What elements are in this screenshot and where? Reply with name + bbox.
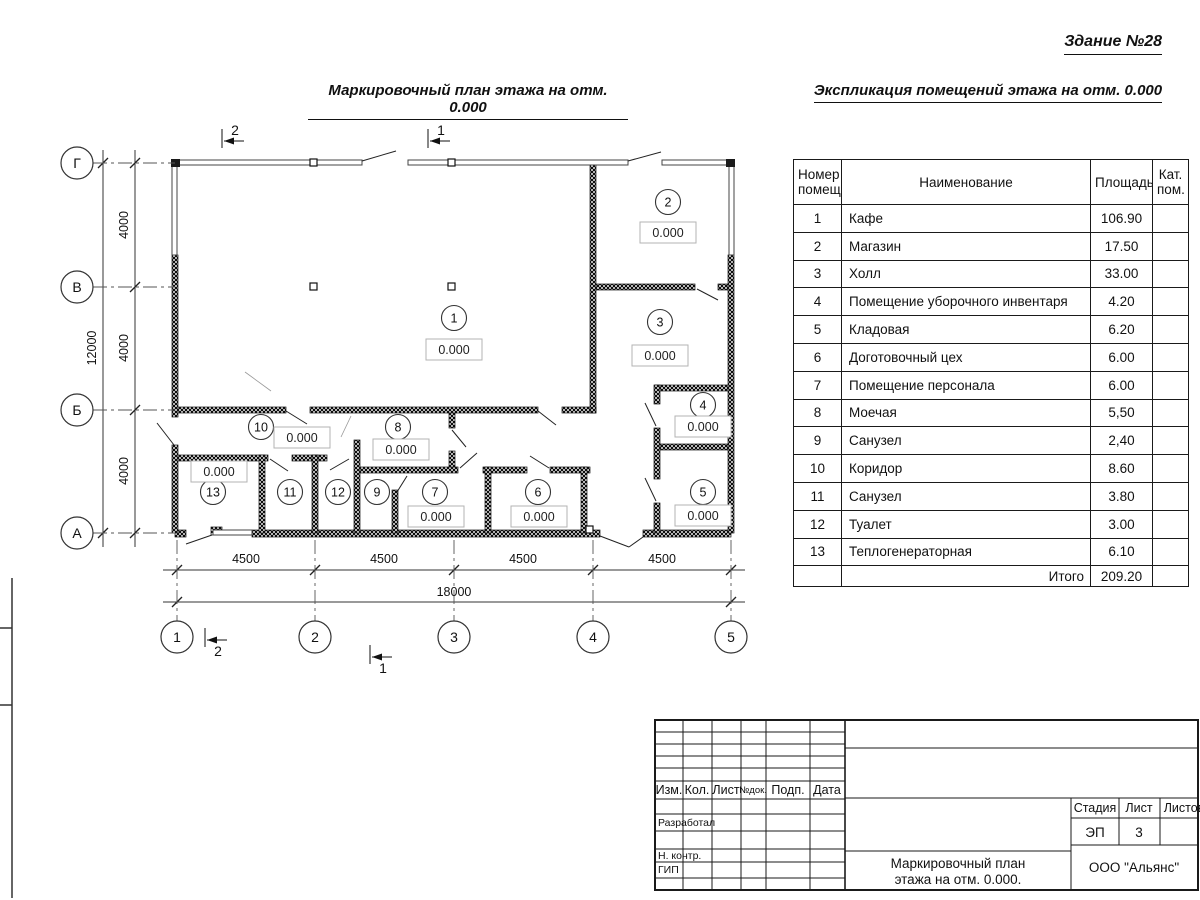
room-name-cell: Холл [842,260,1091,288]
axis-label: В [72,279,81,295]
room-number-label: 12 [331,486,345,500]
section-marker-arrowhead [430,138,440,145]
tb-company: ООО "Альянс" [1089,860,1179,875]
plan-labels: ГВБА123454500450045004500180004000400040… [61,122,747,676]
room-number-cell: 10 [794,455,842,483]
room-area-cell: 6.00 [1091,343,1153,371]
elevation-label: 0.000 [523,510,554,524]
room-area-cell: 106.90 [1091,205,1153,233]
dimension-label: 4500 [232,552,260,566]
table-header-1: Наименование [842,160,1091,205]
explication-table-body: 1Кафе106.902Магазин17.503Холл33.004Помещ… [794,205,1189,587]
title-block: Изм. Кол. Лист №док. Подп. Дата Разработ… [650,715,1200,900]
tb-header-list: Лист [712,783,739,797]
total-label-cell: Итого [842,566,1091,587]
room-category-cell [1153,482,1189,510]
dimension-label: 4500 [370,552,398,566]
room-category-cell [1153,288,1189,316]
room-area-cell: 5,50 [1091,399,1153,427]
room-number-cell: 1 [794,205,842,233]
axis-label: 1 [173,629,181,645]
section-marker-arrowhead [224,138,234,145]
dimension-label: 4500 [648,552,676,566]
table-row: 3Холл33.00 [794,260,1189,288]
room-number-cell: 12 [794,510,842,538]
table-row: 8Моечая5,50 [794,399,1189,427]
room-number-label: 7 [432,486,439,500]
room-number-cell: 6 [794,343,842,371]
explication-title-text: Экспликация помещений этажа на отм. 0.00… [814,82,1162,103]
room-area-cell: 8.60 [1091,455,1153,483]
room-category-cell [1153,538,1189,566]
building-title: Здание №28 [1000,33,1162,55]
room-category-cell [1153,510,1189,538]
section-marker-label: 1 [379,660,387,676]
room-number-label: 8 [395,421,402,435]
axis-label: А [72,525,82,541]
tb-stage-label: Стадия [1074,801,1117,815]
room-area-cell: 6.10 [1091,538,1153,566]
elevation-label: 0.000 [687,509,718,523]
room-category-cell [1153,427,1189,455]
room-name-cell: Магазин [842,232,1091,260]
elevation-label: 0.000 [385,443,416,457]
tb-sheets-label: Листов [1164,801,1200,815]
room-number-cell: 8 [794,399,842,427]
room-category-cell [1153,371,1189,399]
room-name-cell: Доготовочный цех [842,343,1091,371]
tb-role-ncontr: Н. контр. [658,850,701,862]
room-name-cell: Санузел [842,427,1091,455]
axis-label: Г [73,155,81,171]
room-name-cell: Санузел [842,482,1091,510]
frame-marks [0,578,12,898]
room-number-label: 2 [665,196,672,210]
room-area-cell: 33.00 [1091,260,1153,288]
table-header-2: Площадь [1091,160,1153,205]
tb-role-gip: ГИП [658,864,679,876]
room-name-cell: Теплогенераторная [842,538,1091,566]
room-category-cell [1153,232,1189,260]
room-number-label: 9 [374,486,381,500]
explication-table-head: Номер помещ.НаименованиеПлощадьКат. пом. [794,160,1189,205]
total-empty-cell [794,566,842,587]
dimension-label: 4500 [509,552,537,566]
table-row: 10Коридор8.60 [794,455,1189,483]
room-area-cell: 17.50 [1091,232,1153,260]
room-category-cell [1153,455,1189,483]
axis-label: 4 [589,629,597,645]
axis-label: 3 [450,629,458,645]
room-number-label: 4 [700,399,707,413]
axis-label: 5 [727,629,735,645]
axis-label: 2 [311,629,319,645]
dimension-label: 4000 [117,457,131,485]
room-number-label: 13 [206,486,220,500]
elevation-label: 0.000 [286,431,317,445]
room-category-cell [1153,316,1189,344]
table-row: 1Кафе106.90 [794,205,1189,233]
room-area-cell: 3.80 [1091,482,1153,510]
tb-doc-title-line2: этажа на отм. 0.000. [895,872,1022,887]
room-number-label: 10 [254,421,268,435]
explication-table: Номер помещ.НаименованиеПлощадьКат. пом.… [793,159,1189,587]
room-area-cell: 2,40 [1091,427,1153,455]
room-name-cell: Кладовая [842,316,1091,344]
room-category-cell [1153,399,1189,427]
building-title-text: Здание №28 [1064,33,1162,55]
elevation-label: 0.000 [420,510,451,524]
room-number-cell: 4 [794,288,842,316]
table-row: 7Помещение персонала6.00 [794,371,1189,399]
tb-header-data: Дата [813,783,841,797]
table-row: 11Санузел3.80 [794,482,1189,510]
table-row: 9Санузел2,40 [794,427,1189,455]
table-row: 5Кладовая6.20 [794,316,1189,344]
elevation-label: 0.000 [687,420,718,434]
room-name-cell: Коридор [842,455,1091,483]
room-number-label: 3 [657,316,664,330]
room-name-cell: Кафе [842,205,1091,233]
explication-title: Экспликация помещений этажа на отм. 0.00… [798,82,1178,103]
dimension-label: 4000 [117,334,131,362]
table-row: 12Туалет3.00 [794,510,1189,538]
room-number-cell: 13 [794,538,842,566]
room-number-cell: 11 [794,482,842,510]
section-marker-label: 2 [214,643,222,659]
table-row: 2Магазин17.50 [794,232,1189,260]
table-row: 4Помещение уборочного инвентаря4.20 [794,288,1189,316]
room-category-cell [1153,260,1189,288]
tb-header-ndok: №док. [739,785,767,796]
room-area-cell: 3.00 [1091,510,1153,538]
total-value-cell: 209.20 [1091,566,1153,587]
axis-label: Б [72,402,81,418]
tb-header-izm: Изм. [656,783,683,797]
room-number-label: 5 [700,486,707,500]
room-number-label: 11 [284,486,297,500]
room-number-cell: 3 [794,260,842,288]
dimension-lines [98,150,745,607]
dimension-total-label: 12000 [85,331,99,366]
tb-header-podp: Подп. [771,783,804,797]
room-area-cell: 4.20 [1091,288,1153,316]
room-name-cell: Помещение уборочного инвентаря [842,288,1091,316]
tb-sheet-label: Лист [1125,801,1152,815]
section-marker-label: 2 [231,122,239,138]
elevation-label: 0.000 [652,226,683,240]
room-category-cell [1153,205,1189,233]
room-number-label: 6 [535,486,542,500]
dimension-total-label: 18000 [437,585,472,599]
room-category-cell [1153,343,1189,371]
tb-role-developed: Разработал [658,817,715,829]
table-header-row: Номер помещ.НаименованиеПлощадьКат. пом. [794,160,1189,205]
room-area-cell: 6.00 [1091,371,1153,399]
table-header-0: Номер помещ. [794,160,842,205]
tb-doc-title-line1: Маркировочный план [891,856,1026,871]
room-name-cell: Помещение персонала [842,371,1091,399]
total-category-cell [1153,566,1189,587]
room-number-cell: 5 [794,316,842,344]
table-row: 13Теплогенераторная6.10 [794,538,1189,566]
tb-sheet-value: 3 [1135,825,1143,840]
table-header-3: Кат. пом. [1153,160,1189,205]
room-name-cell: Туалет [842,510,1091,538]
dimension-label: 4000 [117,211,131,239]
room-area-cell: 6.20 [1091,316,1153,344]
room-number-cell: 7 [794,371,842,399]
elevation-label: 0.000 [644,349,675,363]
section-marker-label: 1 [437,122,445,138]
room-number-label: 1 [451,312,458,326]
tb-stage-value: ЭП [1085,825,1104,840]
elevation-label: 0.000 [203,465,234,479]
room-number-cell: 9 [794,427,842,455]
room-number-cell: 2 [794,232,842,260]
tb-header-kol: Кол. [685,783,710,797]
elevation-label: 0.000 [438,343,469,357]
table-total-row: Итого209.20 [794,566,1189,587]
room-name-cell: Моечая [842,399,1091,427]
table-row: 6Доготовочный цех6.00 [794,343,1189,371]
